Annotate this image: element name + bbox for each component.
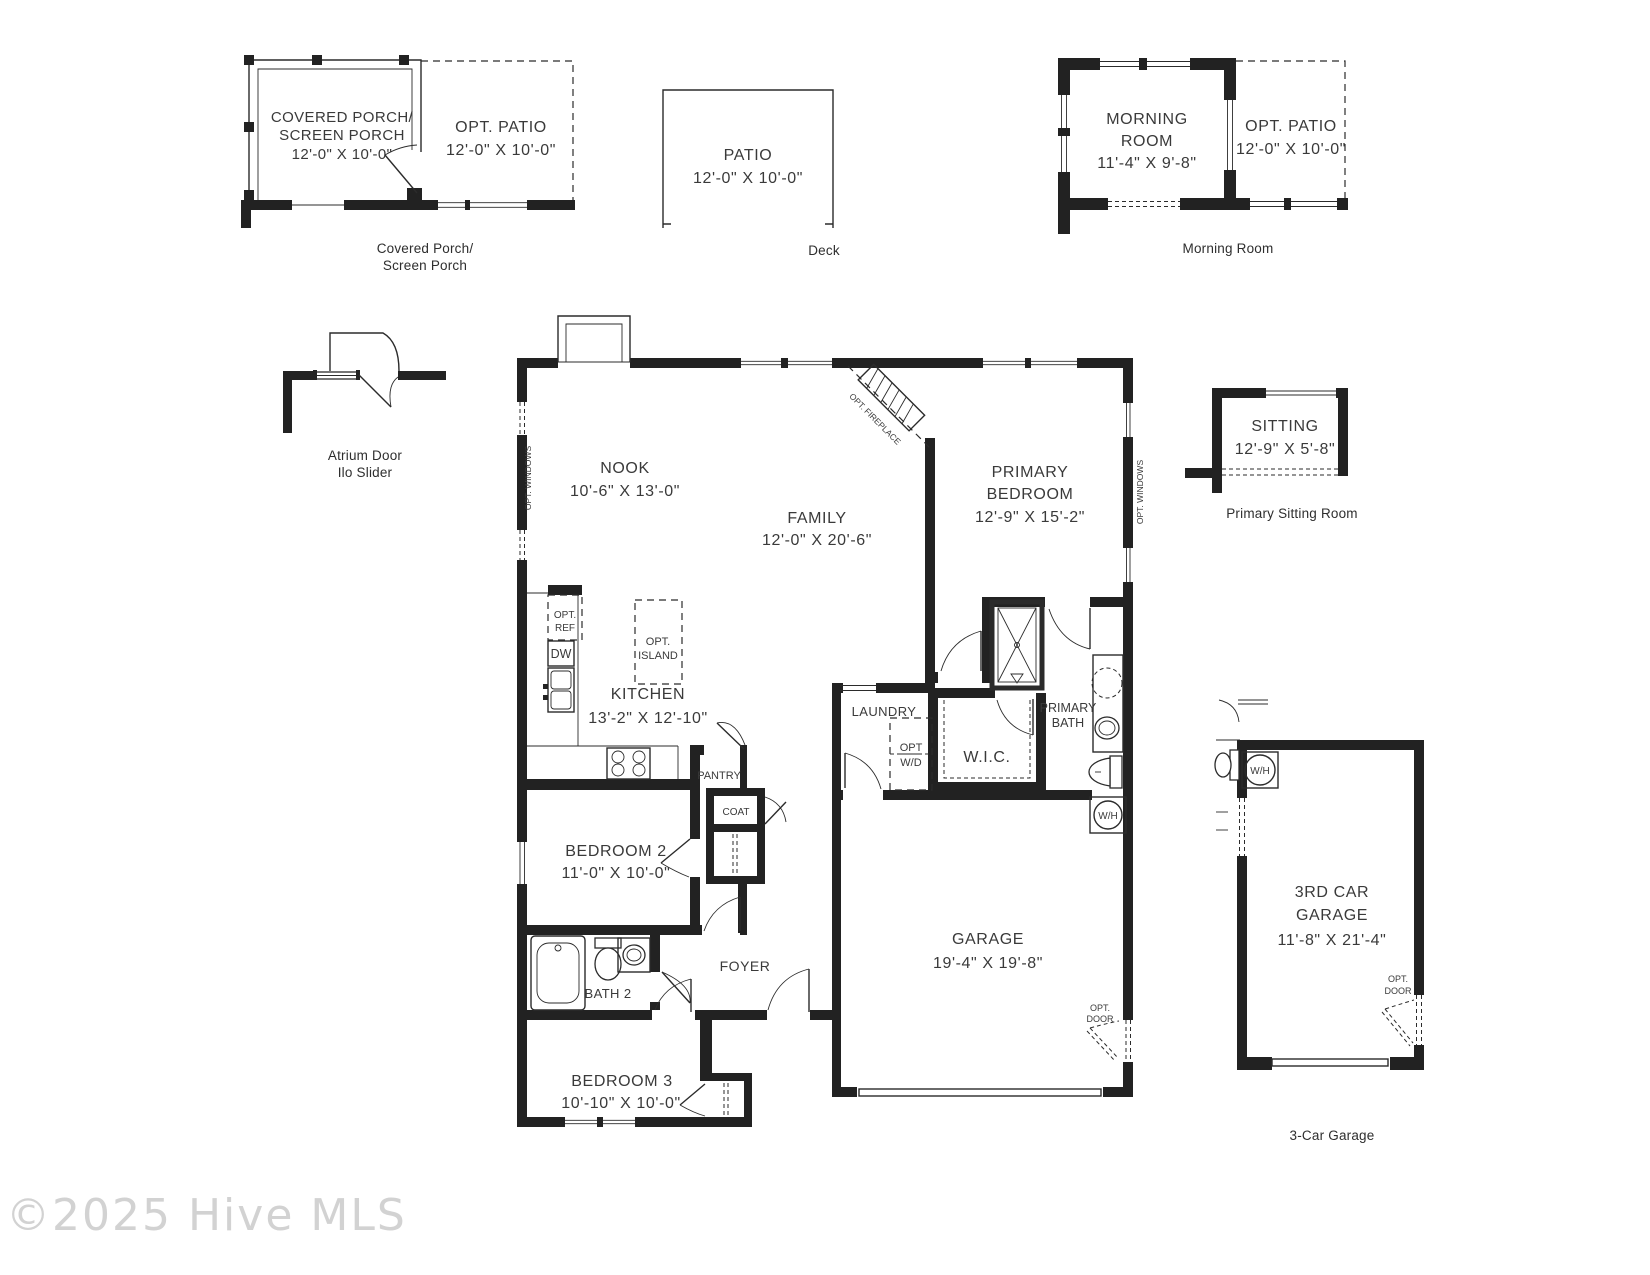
bedroom2-dims: 11'-0" X 10'-0" [562, 865, 671, 882]
bath2-label: BATH 2 [585, 986, 632, 1001]
covered-porch-label: COVERED PORCH/ [271, 109, 414, 126]
third-garage-label: 3RD CAR [1295, 884, 1369, 901]
covered-porch-label2: SCREEN PORCH [279, 127, 405, 144]
bath2-toilet-icon [595, 938, 621, 980]
kitchen-label: KITCHEN [611, 686, 685, 703]
garage-opt-door-icon [1087, 1021, 1119, 1061]
third-garage-opt-door-label: OPT. [1388, 974, 1408, 984]
patio-label: PATIO [724, 147, 773, 164]
opt-island-label2: ISLAND [638, 650, 678, 662]
floor-plan-drawing: COVERED PORCH/ SCREEN PORCH 12'-0" X 10'… [0, 0, 1650, 1275]
opt-island-label: OPT. [646, 636, 670, 648]
sitting-label: SITTING [1251, 418, 1318, 435]
atrium-door-option: Atrium Door Ilo Slider [283, 333, 446, 480]
bedroom3-label: BEDROOM 3 [571, 1073, 672, 1090]
garage-opt-door-label2: DOOR [1087, 1014, 1115, 1024]
third-garage-label2: GARAGE [1296, 907, 1368, 924]
wic-label: W.I.C. [963, 749, 1010, 766]
covered-porch-dims: 12'-0" X 10'-0" [292, 146, 393, 163]
nook-bumpout [558, 316, 630, 362]
atrium-caption2: Ilo Slider [338, 465, 393, 480]
primary-bedroom-label: PRIMARY [992, 464, 1069, 481]
front-door-icon [768, 969, 809, 1012]
laundry-label: LAUNDRY [852, 704, 917, 719]
nook-label: NOOK [600, 460, 650, 477]
wh-label: W/H [1098, 811, 1117, 822]
garage-door-icon [859, 1089, 1101, 1096]
opt-wd-label: OPT [900, 742, 923, 754]
bedroom2-label: BEDROOM 2 [565, 843, 666, 860]
sitting-caption: Primary Sitting Room [1226, 506, 1358, 521]
opt-windows-right-label: OPT. WINDOWS [1135, 460, 1145, 525]
covered-porch-option: COVERED PORCH/ SCREEN PORCH 12'-0" X 10'… [241, 55, 575, 273]
morning-room-option: MORNING ROOM 11'-4" X 9'-8" OPT. PATIO 1… [1058, 58, 1348, 256]
third-garage-dims: 11'-8" X 21'-4" [1278, 932, 1387, 949]
kitchen-dims: 13'-2" X 12'-10" [588, 710, 708, 727]
foyer-label: FOYER [720, 958, 771, 974]
bedroom3-dims: 10'-10" X 10'-0" [561, 1095, 681, 1112]
opt-ref-label2: REF [555, 623, 575, 634]
primary-toilet-icon [1089, 756, 1122, 788]
third-garage-door-icon [1272, 1059, 1388, 1066]
sitting-room-option: SITTING 12'-9" X 5'-8" Primary Sitting R… [1185, 388, 1358, 521]
kitchen-sink-icon [543, 668, 574, 712]
opt-fireplace-label: OPT. FIREPLACE [847, 391, 903, 447]
garage-dims: 19'-4" X 19'-8" [933, 955, 1043, 972]
nook-dims: 10'-6" X 13'-0" [570, 483, 680, 500]
primary-bath-label2: BATH [1052, 716, 1084, 730]
primary-bath-label: PRIMARY [1040, 701, 1097, 715]
coat-label: COAT [722, 807, 749, 818]
pantry-label: PANTRY [697, 770, 741, 782]
bath2-sink-icon [618, 938, 650, 972]
stove-icon [607, 748, 650, 779]
morning-room-dims: 11'-4" X 9'-8" [1097, 155, 1196, 172]
opt-patio-left-dims: 12'-0" X 10'-0" [446, 142, 556, 159]
opt-patio-right-dims: 12'-0" X 10'-0" [1236, 141, 1346, 158]
opt-patio-right-label: OPT. PATIO [1245, 118, 1337, 135]
patio-deck-option: PATIO 12'-0" X 10'-0" Deck [663, 90, 840, 258]
third-garage-caption: 3-Car Garage [1290, 1128, 1375, 1143]
covered-porch-caption: Covered Porch/ [377, 241, 474, 256]
bath-fixtures [531, 602, 1126, 1010]
sitting-dims: 12'-9" X 5'-8" [1235, 441, 1336, 458]
family-label: FAMILY [787, 510, 846, 527]
patio-dims: 12'-0" X 10'-0" [693, 170, 803, 187]
garage-label: GARAGE [952, 931, 1024, 948]
wh-3rd-label: W/H [1250, 766, 1269, 777]
bath2-tub-icon [531, 936, 585, 1010]
kitchen-fixtures [527, 585, 932, 790]
primary-vanity-icon [1092, 655, 1123, 752]
covered-porch-caption2: Screen Porch [383, 258, 467, 273]
third-garage-opt-door-icon [1382, 1000, 1414, 1046]
atrium-door-icon [330, 333, 399, 407]
deck-caption: Deck [808, 243, 840, 258]
opt-ref-label: OPT. [554, 610, 576, 621]
third-car-garage-option: 3RD CAR GARAGE 11'-8" X 21'-4" OPT. DOOR… [1215, 700, 1424, 1143]
primary-bedroom-label2: BEDROOM [987, 486, 1074, 503]
shower-icon [992, 602, 1042, 688]
opt-wd-label2: W/D [900, 757, 921, 769]
main-floor-plan: NOOK 10'-6" X 13'-0" FAMILY 12'-0" X 20'… [517, 316, 1145, 1127]
floor-plan-page: COVERED PORCH/ SCREEN PORCH 12'-0" X 10'… [0, 0, 1650, 1275]
atrium-caption: Atrium Door [328, 448, 403, 463]
watermark: ©2025 Hive MLS [6, 1190, 407, 1241]
primary-bedroom-dims: 12'-9" X 15'-2" [975, 509, 1085, 526]
garage-opt-door-label: OPT. [1090, 1003, 1110, 1013]
opt-windows-left-label: OPT. WINDOWS [523, 446, 533, 511]
opt-patio-left-label: OPT. PATIO [455, 119, 547, 136]
family-dims: 12'-0" X 20'-6" [762, 532, 872, 549]
third-garage-opt-door-label2: DOOR [1385, 986, 1413, 996]
dw-label: DW [551, 647, 572, 661]
morning-room-label2: ROOM [1121, 133, 1173, 150]
morning-room-label: MORNING [1106, 111, 1188, 128]
morning-room-caption: Morning Room [1183, 241, 1274, 256]
